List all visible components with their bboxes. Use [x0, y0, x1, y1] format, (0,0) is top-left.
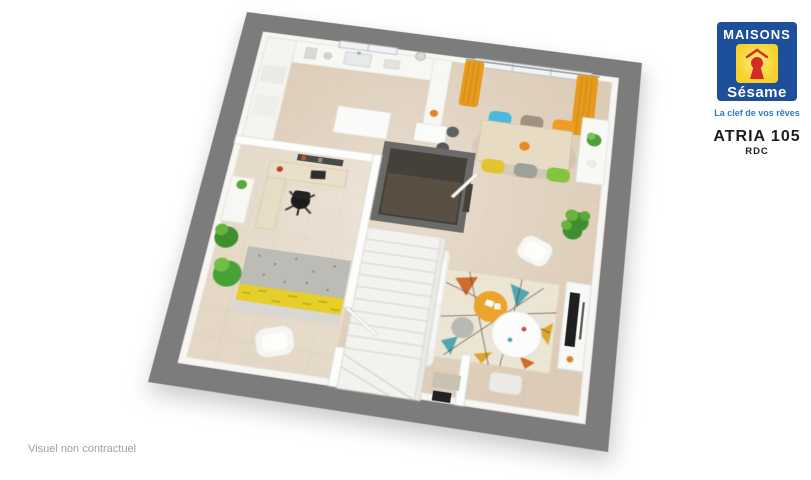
model-name: ATRIA 105 [700, 128, 811, 146]
page: MAISONS Sésame La clef de vos rêves ATRI… [0, 0, 811, 480]
toaster [384, 59, 401, 69]
keyhole-icon [736, 44, 778, 83]
logo-tagline: La clef de vos rêves [700, 108, 811, 118]
maisons-sesame-logo: MAISONS Sésame [717, 22, 797, 101]
floorplan-3d-render [148, 12, 642, 452]
floor-label: RDC [700, 146, 811, 157]
laptop [310, 170, 326, 179]
ottoman [488, 371, 523, 395]
bar-table [413, 123, 447, 145]
espresso-machine [304, 47, 317, 59]
disclaimer-text: Visuel non contractuel [28, 443, 136, 455]
logo-text-maisons: MAISONS [723, 27, 791, 42]
logo-text-sesame: Sésame [727, 84, 787, 101]
floorplan-3d-container [148, 12, 642, 452]
